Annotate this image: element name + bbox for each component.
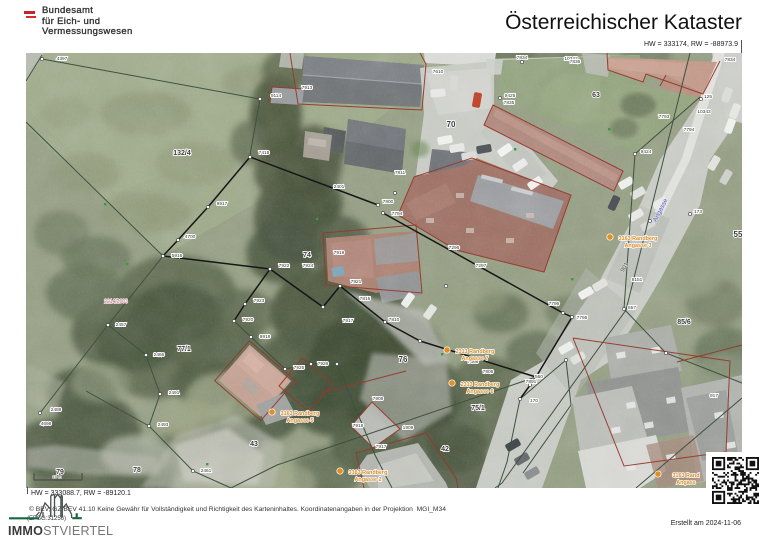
svg-text:2461: 2461: [201, 468, 212, 474]
svg-text:7795: 7795: [577, 315, 588, 321]
svg-text:173: 173: [694, 209, 702, 215]
svg-text:7926: 7926: [318, 361, 329, 367]
svg-text:2493: 2493: [158, 422, 169, 428]
svg-text:8151: 8151: [632, 277, 643, 283]
svg-text:7796: 7796: [549, 301, 560, 307]
svg-text:85/6: 85/6: [677, 319, 691, 326]
svg-text:55: 55: [734, 230, 742, 239]
svg-text:10 m: 10 m: [53, 474, 63, 479]
svg-text:7908: 7908: [373, 396, 384, 402]
svg-text:75/1: 75/1: [471, 405, 485, 412]
svg-text:7296: 7296: [449, 245, 460, 251]
svg-text:7800: 7800: [383, 199, 394, 205]
svg-text:2401: 2401: [334, 184, 345, 190]
svg-text:43: 43: [250, 441, 258, 448]
svg-text:2491: 2491: [169, 390, 180, 396]
svg-text:7923: 7923: [254, 298, 265, 304]
svg-text:7913: 7913: [302, 85, 313, 91]
svg-text:7297: 7297: [476, 263, 487, 269]
svg-text:560: 560: [535, 374, 543, 380]
svg-text:2457: 2457: [116, 322, 127, 328]
svg-text:9425: 9425: [505, 93, 516, 99]
svg-text:7917: 7917: [343, 318, 354, 324]
svg-text:7418: 7418: [259, 150, 270, 156]
svg-text:7917: 7917: [376, 444, 387, 450]
svg-text:7836: 7836: [570, 59, 581, 65]
svg-text:7810: 7810: [389, 317, 400, 323]
svg-text:74: 74: [303, 252, 311, 259]
svg-text:77/1: 77/1: [177, 346, 191, 353]
svg-text:1909: 1909: [403, 425, 414, 431]
svg-text:70: 70: [447, 120, 456, 129]
svg-text:3163 Randberg: 3163 Randberg: [281, 411, 320, 417]
svg-text:7793: 7793: [659, 114, 670, 120]
svg-text:2313 Randberg: 2313 Randberg: [461, 382, 500, 388]
svg-text:125: 125: [704, 94, 712, 100]
svg-text:3163 Randberg: 3163 Randberg: [619, 236, 658, 242]
svg-text:7794: 7794: [392, 211, 403, 217]
svg-text:Angasse 2: Angasse 2: [355, 477, 382, 483]
svg-text:2313 Randberg: 2313 Randberg: [456, 349, 495, 355]
svg-text:7610: 7610: [433, 69, 444, 75]
svg-text:10343: 10343: [697, 109, 711, 115]
svg-text:7906: 7906: [483, 369, 494, 375]
svg-text:7815: 7815: [360, 296, 371, 302]
svg-text:7918: 7918: [353, 423, 364, 429]
svg-text:Angasse 5: Angasse 5: [287, 418, 314, 424]
svg-text:42: 42: [441, 446, 449, 453]
svg-text:9918: 9918: [260, 334, 271, 340]
svg-text:63: 63: [592, 92, 600, 99]
svg-text:7924: 7924: [303, 263, 314, 269]
svg-text:9917: 9917: [217, 201, 228, 207]
svg-text:2466: 2466: [154, 352, 165, 358]
svg-text:2214/2003: 2214/2003: [104, 299, 128, 305]
svg-text:557: 557: [628, 305, 636, 311]
svg-text:4397: 4397: [57, 56, 68, 62]
svg-text:132/4: 132/4: [173, 150, 191, 157]
svg-text:2488: 2488: [51, 407, 62, 413]
svg-text:9424: 9424: [641, 149, 652, 155]
svg-text:4700: 4700: [185, 234, 196, 240]
svg-text:Angasse 6: Angasse 6: [467, 389, 494, 395]
svg-text:7920: 7920: [243, 317, 254, 323]
svg-text:7921: 7921: [351, 279, 362, 285]
svg-text:Angasse 3: Angasse 3: [625, 243, 652, 249]
svg-text:4698: 4698: [41, 421, 52, 427]
svg-text:7922: 7922: [279, 263, 290, 269]
svg-text:Angass: Angass: [676, 480, 695, 486]
svg-text:9114: 9114: [271, 93, 282, 99]
svg-text:7794: 7794: [684, 127, 695, 133]
svg-text:7811: 7811: [395, 170, 406, 176]
svg-text:7834: 7834: [517, 55, 528, 61]
svg-text:5916: 5916: [172, 253, 183, 259]
svg-text:917: 917: [710, 393, 718, 399]
svg-text:170: 170: [530, 398, 538, 404]
svg-text:7919: 7919: [334, 250, 345, 256]
svg-text:Angasse 7: Angasse 7: [462, 356, 489, 362]
svg-text:7925: 7925: [294, 365, 305, 371]
svg-text:3163 Rand: 3163 Rand: [673, 473, 700, 479]
svg-text:78: 78: [133, 467, 141, 474]
svg-text:7834: 7834: [725, 57, 736, 63]
svg-text:76: 76: [399, 355, 408, 364]
svg-text:7835: 7835: [504, 100, 515, 106]
svg-text:3163 Randberg: 3163 Randberg: [349, 470, 388, 476]
